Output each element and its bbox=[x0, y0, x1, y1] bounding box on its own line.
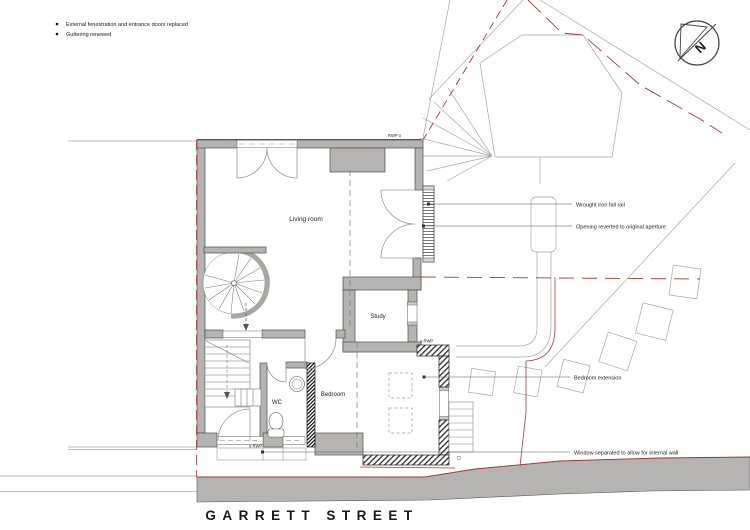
boundary-mid-horizontal bbox=[421, 277, 700, 279]
room-label-wc: WC bbox=[272, 400, 283, 406]
boundary-e-diagonal bbox=[528, 0, 722, 133]
boundary-extension-foot bbox=[360, 467, 455, 468]
door-sill-top bbox=[237, 141, 297, 148]
fall-rail bbox=[423, 186, 434, 262]
rwp-label-side: o RWP bbox=[420, 339, 433, 344]
fence-line-2 bbox=[429, 0, 523, 99]
annotation-fall-rail: Wrought iron fall rail bbox=[576, 203, 625, 209]
title-street-name: GARRETT STREET bbox=[205, 508, 418, 523]
north-arrow: N bbox=[675, 21, 719, 65]
room-label-study: Study bbox=[370, 314, 385, 320]
opening-sill-lower bbox=[223, 331, 262, 338]
annotation-opening: Opening reverted to original aperture bbox=[576, 225, 666, 231]
rwp-label-front: o RWP bbox=[249, 444, 262, 449]
street bbox=[197, 457, 750, 502]
study-window bbox=[408, 302, 418, 325]
fence-line-3 bbox=[540, 0, 750, 130]
room-label-bedroom: Bedroom bbox=[321, 392, 345, 398]
new-internal-wall bbox=[307, 363, 315, 447]
tree-canopy bbox=[480, 35, 622, 184]
pavement-edge-left bbox=[0, 447, 197, 492]
street-band bbox=[197, 457, 750, 502]
floor-plan: N External fenestration and entrance doo… bbox=[0, 0, 750, 530]
bay-roof-rays bbox=[420, 88, 492, 181]
note-item: External fenestration and entrance doors… bbox=[66, 22, 188, 28]
note-item: Guttering renewed bbox=[66, 32, 111, 38]
boundary-garden bbox=[520, 277, 555, 466]
boundary-ne-diagonal bbox=[423, 0, 507, 140]
bullet-icon bbox=[56, 33, 59, 36]
extension-window bbox=[440, 388, 449, 420]
annotation-window: Window separated to allow for internal w… bbox=[574, 451, 678, 457]
extension-interior bbox=[363, 352, 439, 455]
toilet bbox=[269, 413, 283, 430]
bullet-icon bbox=[56, 23, 59, 26]
external-steps bbox=[449, 402, 473, 460]
annotation-extension: Bedroom extension bbox=[574, 376, 621, 382]
path-diagonal bbox=[545, 163, 735, 367]
room-label-living-room: Living room bbox=[289, 216, 323, 223]
notes-list: External fenestration and entrance doors… bbox=[56, 22, 188, 38]
rwp-label-top: RWP o bbox=[388, 133, 402, 138]
